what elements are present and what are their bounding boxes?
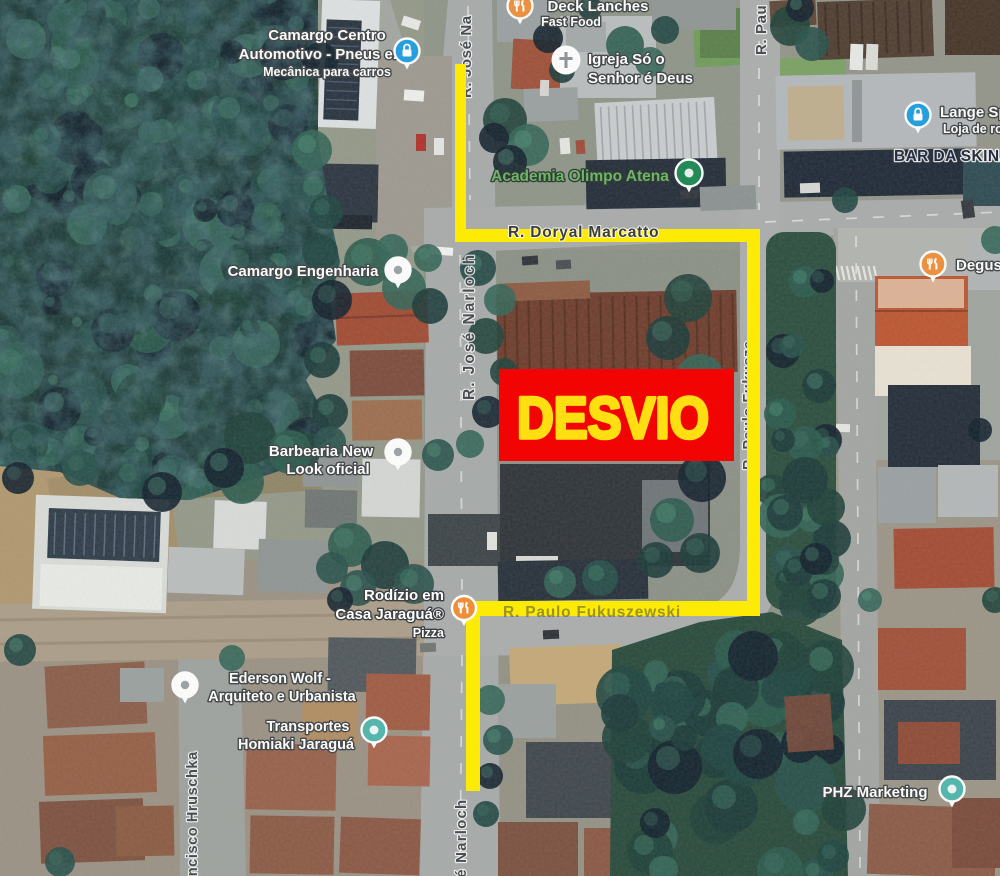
- svg-text:Casa Jaraguá®: Casa Jaraguá®: [335, 606, 444, 623]
- svg-text:R. Doryal Marcatto: R. Doryal Marcatto: [508, 224, 659, 241]
- svg-text:R. Paulo Fukuszewski: R. Paulo Fukuszewski: [503, 604, 681, 621]
- svg-text:Pizza: Pizza: [413, 626, 445, 640]
- svg-text:DESVIO: DESVIO: [517, 386, 709, 451]
- svg-text:Rodízio em: Rodízio em: [364, 587, 444, 604]
